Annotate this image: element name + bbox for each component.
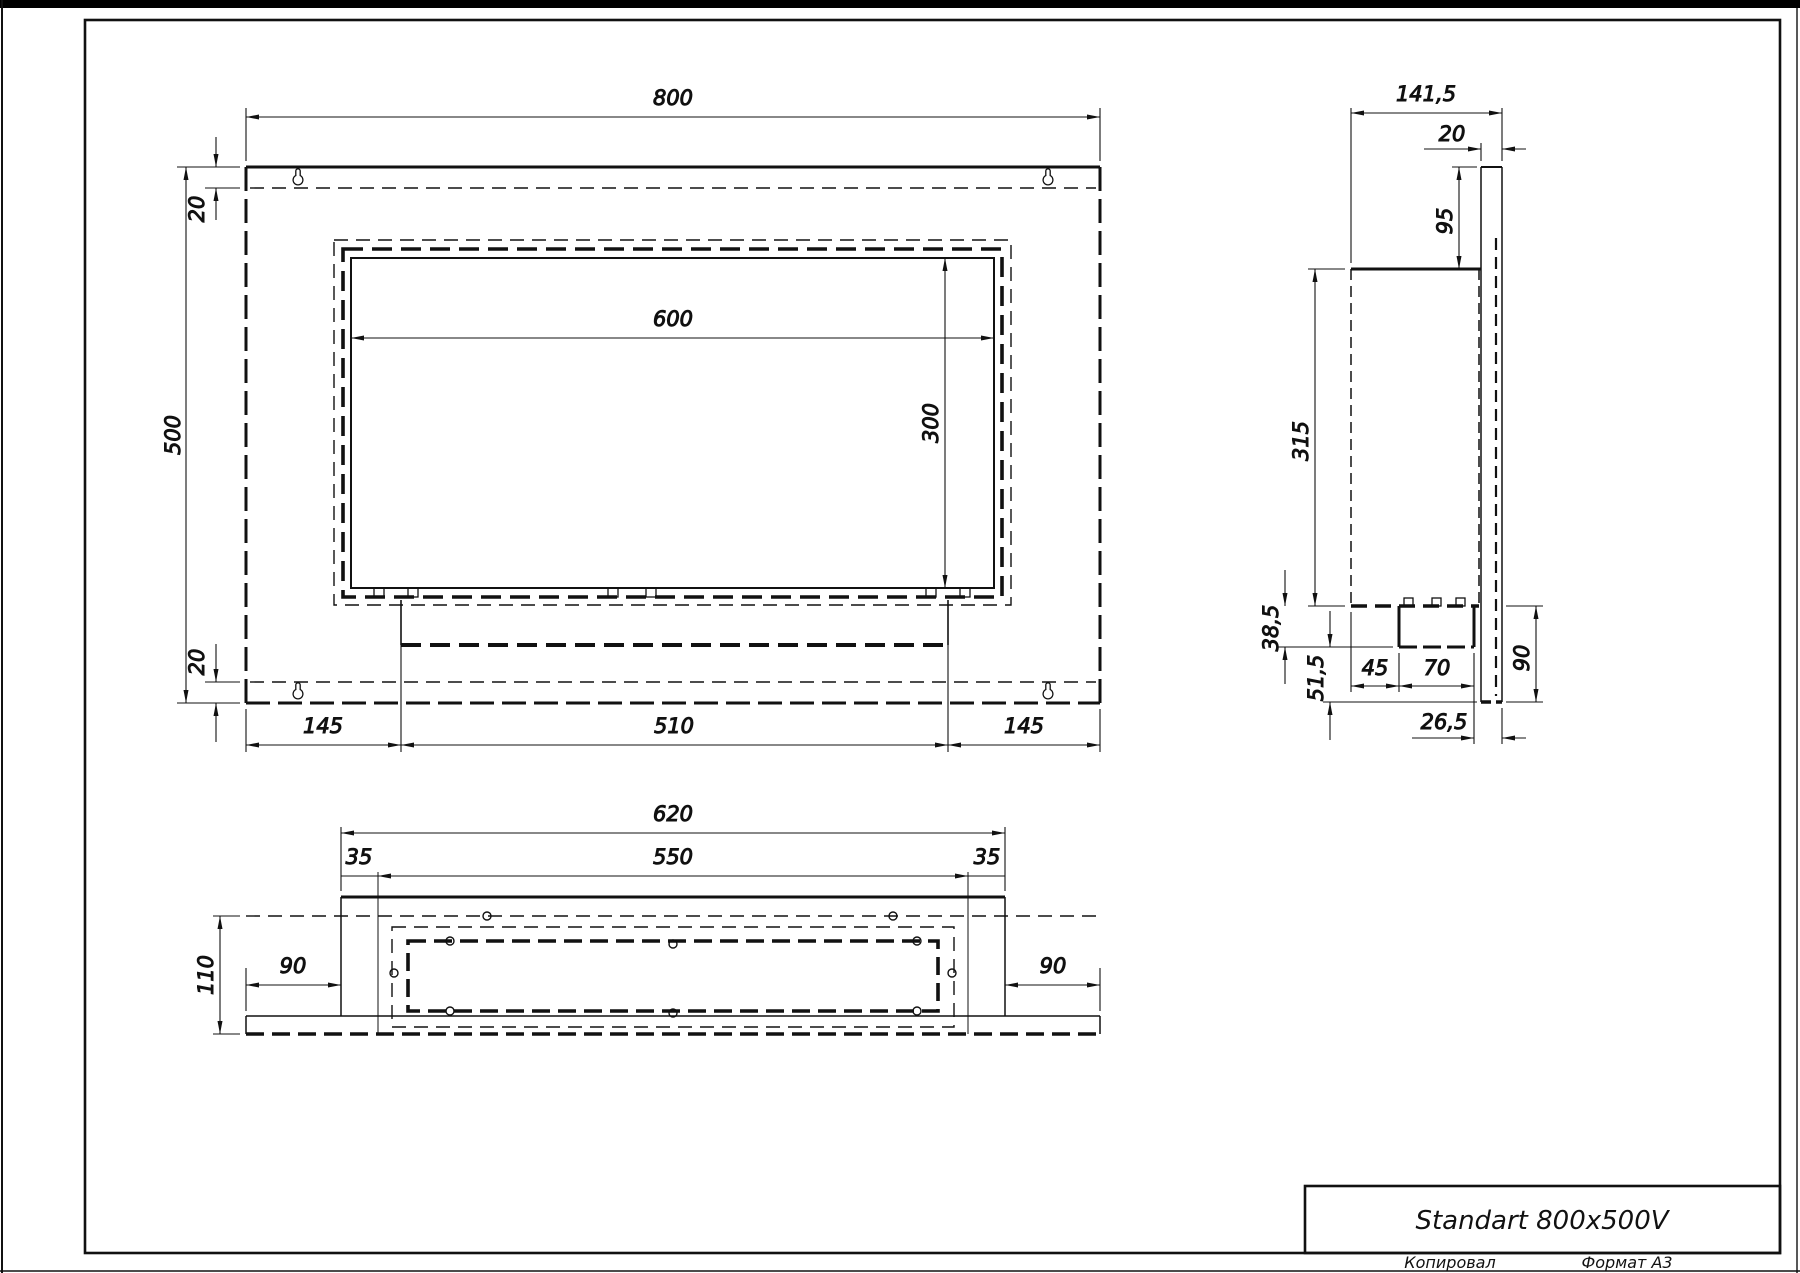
dim-label-70: 70 bbox=[1424, 656, 1451, 680]
keyhole-icon bbox=[293, 169, 303, 185]
dim-label-left-145: 145 bbox=[303, 714, 343, 738]
dim-label-510: 510 bbox=[654, 714, 694, 738]
drawing-sheet: 800 500 20 20 bbox=[0, 0, 1800, 1273]
front-opening bbox=[334, 240, 1011, 605]
keyhole-icon bbox=[293, 683, 303, 699]
dim-front-width bbox=[246, 108, 1100, 161]
side-wall-plate bbox=[1481, 167, 1502, 702]
bottom-tray-opening bbox=[390, 912, 956, 1027]
dim-label-right-145: 145 bbox=[1004, 714, 1044, 738]
drawing-frame bbox=[85, 20, 1780, 1253]
dim-label-right-90: 90 bbox=[1040, 954, 1067, 978]
technical-drawing: 800 500 20 20 bbox=[0, 0, 1800, 1273]
dim-label-45: 45 bbox=[1362, 656, 1389, 680]
dim-label-620: 620 bbox=[653, 802, 693, 826]
front-burner-tray bbox=[401, 600, 948, 645]
page-border bbox=[0, 0, 1800, 1273]
keyhole-icon bbox=[1043, 683, 1053, 699]
dim-label-left-35: 35 bbox=[346, 845, 373, 869]
screw-hole bbox=[948, 969, 956, 977]
dim-side-45-70 bbox=[1351, 612, 1474, 692]
dim-label-side-90: 90 bbox=[1510, 645, 1534, 672]
side-burner-tray bbox=[1399, 606, 1474, 647]
dim-label-left-90: 90 bbox=[280, 954, 307, 978]
dim-label-141-5: 141,5 bbox=[1396, 82, 1456, 106]
side-view: 141,5 20 95 315 38,5 bbox=[1259, 82, 1543, 744]
bottom-view: 620 35 550 35 110 90 90 bbox=[194, 802, 1100, 1034]
screw-hole bbox=[390, 969, 398, 977]
dim-label-95: 95 bbox=[1433, 208, 1457, 235]
copied-label: Копировал bbox=[1404, 1253, 1495, 1272]
dim-label-38-5: 38,5 bbox=[1259, 605, 1283, 652]
dim-label-110: 110 bbox=[194, 955, 218, 995]
dim-front-bottom-offset bbox=[205, 644, 240, 742]
dim-label-300: 300 bbox=[919, 403, 943, 443]
format-label: Формат А3 bbox=[1581, 1253, 1672, 1272]
dim-front-height bbox=[177, 167, 240, 703]
dim-label-600: 600 bbox=[653, 307, 693, 331]
dim-label-800: 800 bbox=[653, 86, 693, 110]
dim-label-550: 550 bbox=[653, 845, 693, 869]
screw-hole bbox=[913, 1007, 921, 1015]
dim-side-body-height bbox=[1308, 269, 1345, 606]
dim-label-right-35: 35 bbox=[974, 845, 1001, 869]
title-block-title: Standart 800x500V bbox=[1415, 1206, 1670, 1236]
dim-side-depth bbox=[1351, 108, 1502, 263]
dim-label-side-20: 20 bbox=[1439, 122, 1466, 146]
dim-label-315: 315 bbox=[1289, 421, 1313, 461]
paper-top-edge bbox=[0, 0, 1800, 8]
dim-label-51-5: 51,5 bbox=[1304, 655, 1328, 702]
keyhole-icon bbox=[1043, 169, 1053, 185]
dim-bottom-margins bbox=[246, 968, 1100, 1011]
front-view: 800 500 20 20 bbox=[161, 86, 1100, 752]
side-body bbox=[1351, 269, 1481, 606]
dim-front-top-offset bbox=[205, 137, 240, 220]
title-block: Standart 800x500V Копировал Формат А3 bbox=[1305, 1186, 1780, 1272]
screw-hole bbox=[446, 1007, 454, 1015]
dim-label-26-5: 26,5 bbox=[1421, 710, 1468, 734]
dim-label-500: 500 bbox=[161, 415, 185, 455]
dim-label-top-20: 20 bbox=[185, 196, 209, 223]
dim-label-bottom-20: 20 bbox=[185, 649, 209, 676]
